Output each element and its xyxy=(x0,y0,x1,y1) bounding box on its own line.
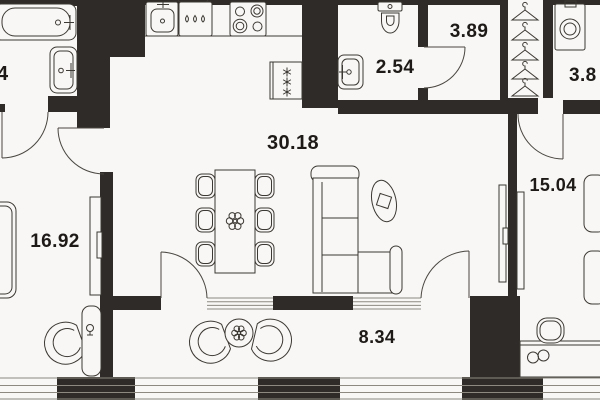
tv-console xyxy=(499,185,508,282)
hanger-icon xyxy=(512,2,538,20)
floor-plan-canvas: 4 2.54 3.89 3.8 30.18 16.92 15.04 8.34 xyxy=(0,0,600,400)
dishwasher xyxy=(179,2,212,36)
bathroom-sink xyxy=(50,47,77,93)
bathtub xyxy=(0,4,76,40)
room-label-bathroom: 4 xyxy=(0,63,9,85)
floor-plan-svg: 4 2.54 3.89 3.8 30.18 16.92 15.04 8.34 xyxy=(0,0,600,400)
desk-chair xyxy=(537,318,564,343)
room-label-hallway: 3.89 xyxy=(450,21,489,42)
bedroom-door xyxy=(58,128,104,174)
wc-sink xyxy=(338,55,363,89)
stove xyxy=(230,2,266,36)
room-label-bedroom2: 15.04 xyxy=(529,175,576,195)
bathroom-door xyxy=(2,112,48,158)
room-label-wc: 2.54 xyxy=(376,57,415,78)
nightstand-lamp xyxy=(82,306,101,376)
room-label-living: 30.18 xyxy=(267,132,319,154)
decor-oval xyxy=(368,178,400,224)
room-label-ensuite: 3.8 xyxy=(569,65,597,86)
kitchen-counter xyxy=(145,0,302,99)
dining-table xyxy=(196,170,274,273)
vase-icon xyxy=(376,193,391,208)
sofa xyxy=(311,166,402,294)
hanger-icon xyxy=(512,61,538,79)
bedroom2-door xyxy=(518,114,563,159)
wc-door xyxy=(424,47,465,88)
balcony-armchair-left xyxy=(184,317,234,369)
fridge xyxy=(270,62,302,99)
hanger-icon xyxy=(512,78,538,96)
toilet xyxy=(378,2,402,33)
tv-panel xyxy=(517,192,524,289)
room-label-balcony: 8.34 xyxy=(359,327,396,347)
balcony-table-plant xyxy=(225,319,253,347)
wardrobe-hangers xyxy=(512,2,538,96)
armchair xyxy=(39,318,89,370)
bed xyxy=(0,202,16,298)
kitchen-sink xyxy=(146,2,178,36)
hanger-icon xyxy=(512,22,538,40)
washing-machine xyxy=(555,1,585,50)
balcony-window-left xyxy=(207,298,273,309)
bed-2 xyxy=(584,175,600,304)
hanger-icon xyxy=(512,42,538,60)
wardrobe xyxy=(90,197,102,295)
desk xyxy=(520,318,600,377)
room-label-bedroom: 16.92 xyxy=(30,231,80,252)
balcony-door-right xyxy=(421,251,469,298)
balcony-window-right xyxy=(353,298,421,309)
balcony-armchair-right xyxy=(250,316,296,365)
